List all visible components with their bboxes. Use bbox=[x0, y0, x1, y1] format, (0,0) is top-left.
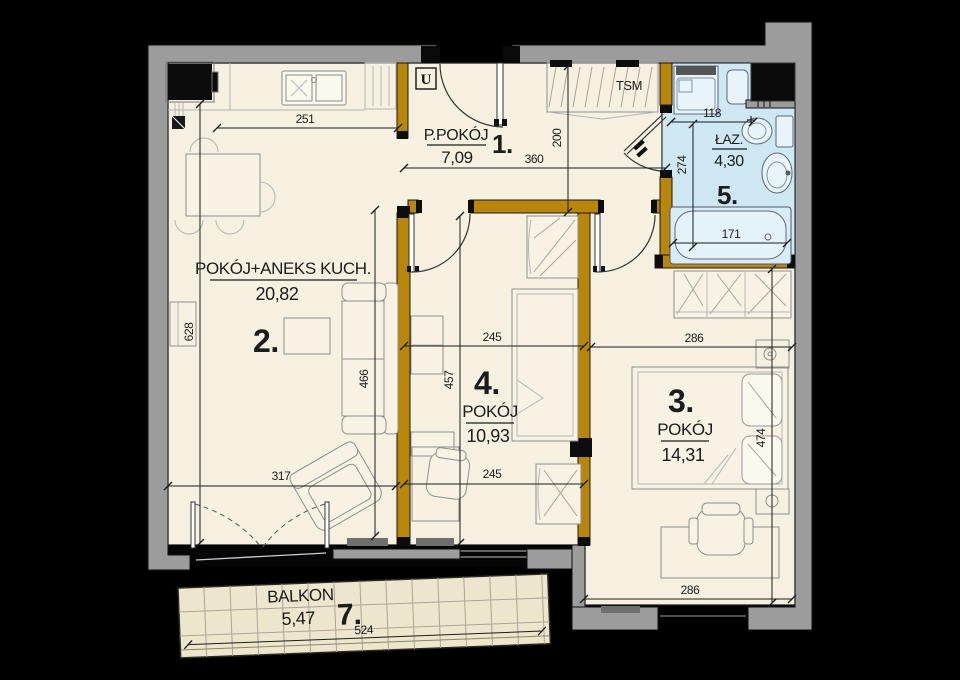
dim-label: 245 bbox=[483, 330, 503, 344]
entry-marker: U bbox=[416, 68, 436, 89]
dim-label: 466 bbox=[357, 369, 371, 389]
south-wall-face bbox=[333, 549, 460, 559]
room3-wardrobe bbox=[674, 271, 791, 318]
dim-label: 286 bbox=[685, 331, 705, 345]
shaft bbox=[746, 63, 795, 108]
kitchen-sink bbox=[282, 71, 346, 105]
wardrobe-track bbox=[616, 60, 639, 67]
entry-marker-label: U bbox=[421, 72, 432, 88]
room4-area: 10,93 bbox=[466, 426, 509, 446]
bath-cabinet bbox=[727, 70, 748, 104]
radiator bbox=[601, 606, 640, 613]
room1-area: 7,09 bbox=[441, 148, 473, 167]
dim-label: 286 bbox=[681, 583, 701, 597]
room5-number: 5. bbox=[717, 180, 738, 210]
floor-plan: 524 BALKON 5,47 7. bbox=[0, 0, 960, 680]
wall-bath-west bbox=[660, 63, 672, 105]
room3-area: 14,31 bbox=[661, 445, 704, 465]
dim-label: 474 bbox=[754, 428, 768, 448]
room5-name: ŁAZ. bbox=[715, 131, 743, 147]
wall-hall-south bbox=[470, 200, 600, 213]
radiator bbox=[416, 538, 454, 546]
room3-name: POKÓJ bbox=[657, 420, 713, 439]
south-wall-face bbox=[527, 549, 572, 569]
dim-label: 118 bbox=[703, 106, 722, 120]
balcony-slab bbox=[178, 574, 550, 658]
dim-label: 171 bbox=[722, 227, 742, 241]
wardrobe-marker-label: TSM bbox=[616, 78, 642, 93]
sofa bbox=[342, 283, 398, 434]
room1-name: P.POKÓJ bbox=[424, 125, 489, 144]
room4-bed bbox=[512, 289, 578, 441]
room5-area: 4,30 bbox=[714, 153, 744, 170]
room1-number: 1. bbox=[492, 129, 513, 159]
dim-label: 457 bbox=[442, 370, 456, 390]
dim-label: 251 bbox=[296, 112, 316, 126]
dim-label: 317 bbox=[272, 469, 292, 483]
bath-sink bbox=[762, 153, 792, 193]
dim-label: 274 bbox=[675, 155, 689, 175]
room3-west-pier bbox=[572, 545, 585, 607]
wall-room2-room4 bbox=[397, 213, 410, 545]
dim-label: 200 bbox=[550, 128, 564, 148]
room4-name: POKÓJ bbox=[462, 402, 518, 421]
entry-jamb bbox=[503, 46, 520, 63]
entry-jamb bbox=[421, 46, 440, 63]
room4-wardrobe-top bbox=[527, 216, 578, 278]
room-balcony-area: 5,47 bbox=[281, 608, 316, 629]
room4-wardrobe-bottom bbox=[536, 464, 581, 524]
coffee-table bbox=[284, 318, 330, 354]
radiator bbox=[347, 538, 388, 546]
room-balcony-name: BALKON bbox=[267, 585, 334, 607]
room2-number: 2. bbox=[253, 323, 279, 359]
dim-label: 360 bbox=[525, 152, 545, 166]
dining-table bbox=[186, 154, 260, 216]
fridge bbox=[166, 62, 218, 102]
room3-number: 3. bbox=[668, 383, 694, 419]
dim-label: 628 bbox=[182, 322, 196, 342]
balcony-room: 524 BALKON 5,47 7. bbox=[178, 574, 550, 658]
room2-area: 20,82 bbox=[255, 284, 298, 304]
room-balcony-number: 7. bbox=[337, 598, 362, 632]
room2-name: POKÓJ+ANEKS KUCH. bbox=[195, 259, 371, 278]
room4-number: 4. bbox=[474, 365, 500, 401]
dim-label: 245 bbox=[483, 467, 503, 481]
